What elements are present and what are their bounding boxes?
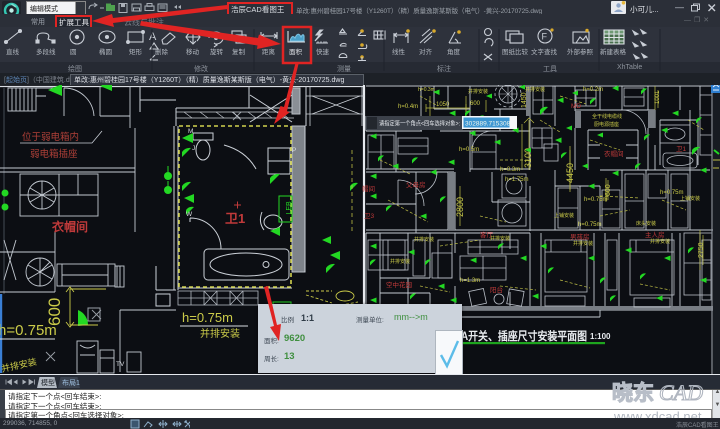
svg-text:并排安装: 并排安装	[390, 258, 410, 265]
svg-text:并排安装: 并排安装	[490, 235, 510, 242]
svg-text:男孩房: 男孩房	[570, 232, 590, 241]
svg-text:并排安装: 并排安装	[525, 86, 545, 93]
svg-text:上铺安装: 上铺安装	[554, 212, 574, 219]
svg-text:h=0.3m: h=0.3m	[500, 167, 520, 173]
svg-text:h=1.3m: h=1.3m	[460, 278, 480, 284]
svg-text:位于弱电箱内: 位于弱电箱内	[22, 131, 79, 143]
svg-text:卫1: 卫1	[225, 211, 245, 226]
svg-text:2800: 2800	[455, 197, 465, 217]
svg-text:客厅: 客厅	[480, 230, 494, 239]
svg-text:1450: 1450	[521, 92, 528, 108]
svg-text:600: 600	[605, 184, 612, 196]
svg-text:弱电箱插座: 弱电箱插座	[30, 148, 78, 160]
svg-text:P: P	[292, 147, 296, 154]
svg-text:4450: 4450	[565, 163, 575, 183]
svg-text:A开关、插座尺寸安装平面图: A开关、插座尺寸安装平面图	[461, 329, 587, 343]
svg-text:并排安装: 并排安装	[414, 236, 434, 243]
svg-text:M: M	[188, 128, 193, 135]
svg-text:主人房: 主人房	[645, 230, 665, 239]
svg-text:W: W	[186, 211, 193, 218]
svg-text:1:100: 1:100	[590, 332, 611, 341]
svg-text:J: J	[192, 145, 195, 152]
svg-text:TV: TV	[116, 361, 125, 368]
svg-text:并排安装: 并排安装	[200, 327, 240, 340]
svg-text:h=1.75m: h=1.75m	[505, 177, 529, 183]
svg-text:MD: MD	[571, 103, 581, 110]
svg-text:卫1: 卫1	[676, 145, 687, 153]
svg-text:h=0.75m: h=0.75m	[182, 310, 233, 325]
svg-text:600: 600	[470, 101, 481, 107]
svg-text:并排安装: 并排安装	[573, 240, 593, 247]
svg-text:LEB: LEB	[286, 201, 293, 215]
svg-text:衣帽间: 衣帽间	[604, 149, 624, 158]
svg-text:父母房: 父母房	[406, 180, 426, 189]
svg-text:2750: 2750	[698, 242, 705, 258]
svg-text:上铺安装: 上铺安装	[680, 195, 700, 202]
svg-text:h=0.2m: h=0.2m	[583, 87, 603, 93]
svg-text:并排安装: 并排安装	[468, 88, 488, 95]
svg-text:A: A	[149, 31, 157, 43]
svg-text:全干线电缆线: 全干线电缆线	[592, 113, 622, 120]
svg-text:h=0.75m: h=0.75m	[578, 222, 602, 228]
svg-text:h=0.5m: h=0.5m	[459, 147, 479, 153]
svg-text:h=0.3m: h=0.3m	[418, 87, 435, 93]
svg-text:h=0.75m: h=0.75m	[0, 322, 57, 339]
svg-text:空中花园: 空中花园	[386, 280, 412, 289]
svg-text:h=0.75m: h=0.75m	[584, 197, 608, 203]
svg-text:阳台: 阳台	[490, 285, 503, 294]
svg-text:床头安装: 床头安装	[636, 220, 656, 227]
svg-text:F: F	[542, 32, 548, 42]
svg-text:衣帽间: 衣帽间	[52, 219, 88, 234]
svg-text:302889.715308: 302889.715308	[465, 121, 511, 128]
svg-text:并排安装: 并排安装	[650, 238, 670, 245]
svg-text:帽间: 帽间	[362, 184, 375, 193]
svg-text:h=0.4m: h=0.4m	[398, 104, 418, 110]
svg-text:1001: 1001	[655, 90, 661, 104]
svg-text:厨电源插座: 厨电源插座	[594, 121, 619, 128]
svg-text:卫3: 卫3	[364, 212, 375, 220]
svg-text:请指定第一个角点<回车选择对象>:: 请指定第一个角点<回车选择对象>:	[379, 120, 460, 128]
svg-text:1050: 1050	[436, 102, 450, 108]
